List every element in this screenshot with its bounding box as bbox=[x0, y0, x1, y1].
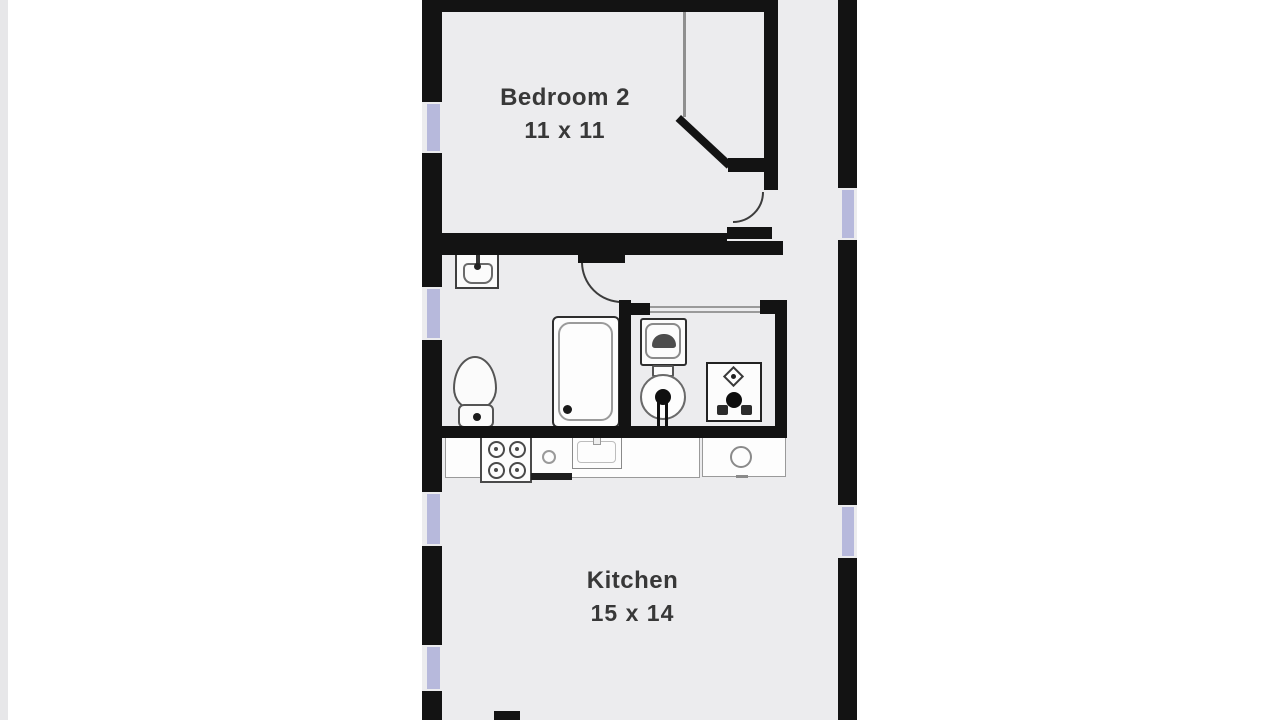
counter-knob-icon bbox=[542, 450, 556, 464]
wall-right-seg2 bbox=[838, 240, 857, 505]
laundry-partition-wall bbox=[619, 300, 631, 433]
page-edge-shade bbox=[0, 0, 8, 720]
furnace-icon bbox=[706, 362, 762, 422]
room-label-bedroom2: Bedroom 2 11 x 11 bbox=[440, 82, 690, 146]
laundry-jamb-left bbox=[619, 303, 650, 315]
bathroom-door-leaf bbox=[578, 252, 625, 263]
bedroom-bottom-wall-thick bbox=[442, 233, 727, 243]
kitchen-counter-right bbox=[702, 433, 786, 477]
wall-left-seg1 bbox=[422, 0, 442, 102]
wall-left-seg3 bbox=[422, 340, 442, 492]
window-right-1 bbox=[842, 190, 854, 238]
bedroom-door-leaf bbox=[727, 227, 772, 239]
window-left-3 bbox=[427, 494, 440, 544]
wall-right-seg3 bbox=[838, 558, 857, 720]
room-dimensions-kitchen: 15 x 14 bbox=[510, 597, 755, 629]
wall-top bbox=[422, 0, 778, 12]
wall-stub-bottom bbox=[494, 711, 520, 720]
water-heater-icon bbox=[640, 374, 686, 428]
bathroom-sink-icon bbox=[455, 252, 499, 289]
wall-right-seg1 bbox=[838, 0, 857, 188]
bedroom-door-arc bbox=[733, 192, 764, 223]
room-dimensions-bedroom2: 11 x 11 bbox=[440, 114, 690, 146]
wall-left-seg4 bbox=[422, 546, 442, 645]
kitchen-top-wall bbox=[442, 426, 787, 438]
laundry-bifold-door bbox=[648, 306, 763, 313]
closet-bottom-wall bbox=[728, 158, 778, 172]
wall-left-seg2 bbox=[422, 153, 442, 287]
stove-icon bbox=[480, 431, 532, 483]
window-left-4 bbox=[427, 647, 440, 689]
dishwasher-edge bbox=[531, 473, 572, 480]
shower-icon bbox=[552, 316, 620, 428]
room-name-bedroom2: Bedroom 2 bbox=[440, 82, 690, 114]
window-left-2 bbox=[427, 289, 440, 338]
window-left-1 bbox=[427, 104, 440, 151]
bathroom-door-arc bbox=[581, 263, 622, 303]
room-label-kitchen: Kitchen 15 x 14 bbox=[510, 565, 755, 629]
laundry-right-wall bbox=[775, 300, 787, 433]
window-right-2 bbox=[842, 507, 854, 556]
kitchen-sink-icon bbox=[572, 436, 622, 469]
floorplan-canvas: Bedroom 2 11 x 11 Kitchen 15 x 14 bbox=[0, 0, 1280, 720]
wall-left-seg5 bbox=[422, 691, 442, 720]
room-name-kitchen: Kitchen bbox=[510, 565, 755, 597]
toilet-icon bbox=[450, 354, 500, 430]
washer-icon bbox=[640, 318, 687, 366]
